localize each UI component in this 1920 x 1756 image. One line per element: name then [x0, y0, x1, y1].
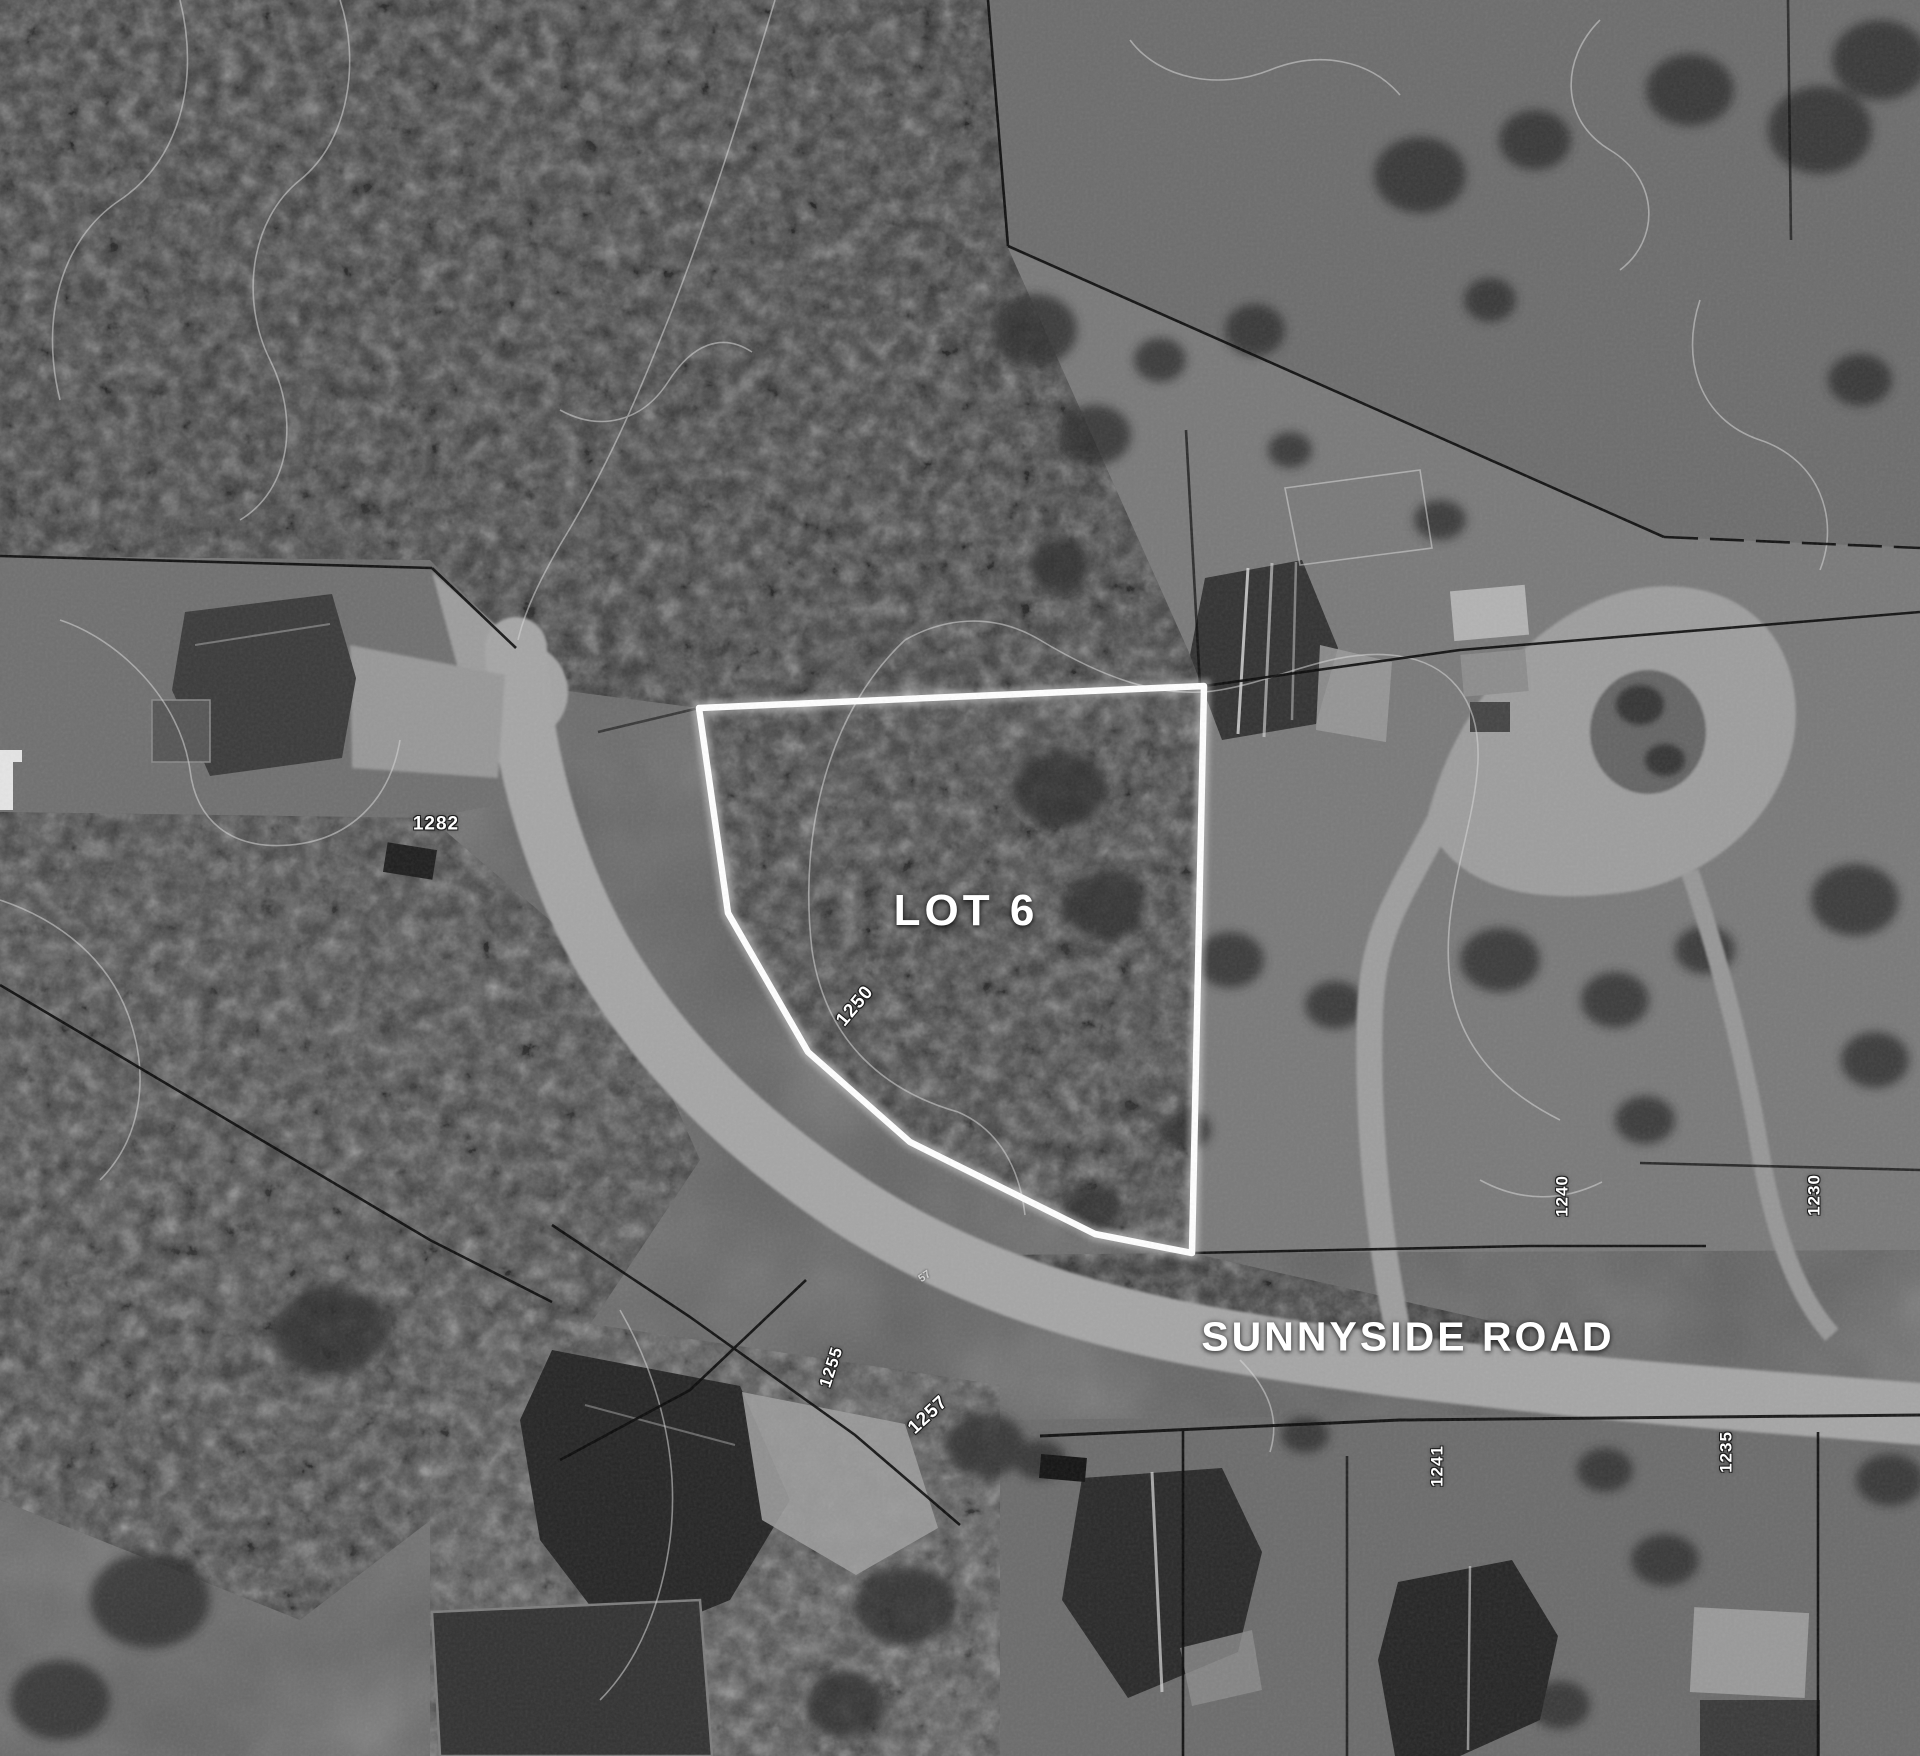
- address-label-1230: 1230: [1806, 1174, 1823, 1216]
- address-label-1282: 1282: [413, 815, 459, 834]
- address-label-1240: 1240: [1554, 1175, 1571, 1217]
- aerial-map: LOT 6 SUNNYSIDE ROAD 1282 1250 1240 1230…: [0, 0, 1920, 1756]
- address-label-1241: 1241: [1429, 1445, 1446, 1487]
- road-label: SUNNYSIDE ROAD: [1201, 1317, 1614, 1358]
- address-label-1235: 1235: [1718, 1431, 1735, 1473]
- aerial-photo-canvas: [0, 0, 1920, 1756]
- lot-label: LOT 6: [894, 889, 1039, 933]
